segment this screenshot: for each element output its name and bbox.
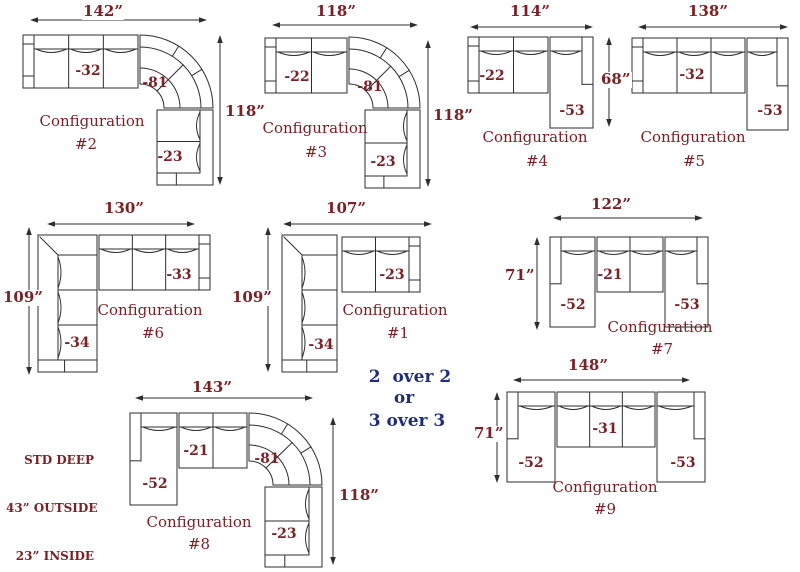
config7-caption: Configuration (607, 320, 712, 336)
config9-height-label: 71” (473, 426, 505, 442)
config7-height-label: 71” (504, 268, 536, 284)
config9-piece-label: -53 (670, 456, 695, 471)
config8-width-label: 143” (191, 380, 233, 396)
config5-caption: Configuration (640, 130, 745, 146)
config2-width-label: 142” (82, 4, 124, 20)
diagram-sheet: 142” 118” -32 -81 -23 Configuration #2 1… (0, 0, 800, 572)
config8-piece-label: -23 (271, 527, 296, 542)
config1-number: #1 (387, 326, 409, 342)
config6-piece-label: -34 (64, 336, 89, 351)
config8-piece-label: -52 (142, 477, 167, 492)
stack-option-note-line3: 3 over 3 (369, 413, 445, 431)
config1-height-label: 109” (231, 290, 273, 306)
config5-piece-label: -32 (679, 68, 704, 83)
config8-caption: Configuration (146, 515, 251, 531)
config3-piece-label: -23 (370, 155, 395, 170)
config3-caption: Configuration (262, 121, 367, 137)
config9-width-label: 148” (567, 358, 609, 374)
config3-width-label: 118” (315, 4, 357, 20)
config2-piece-label: -81 (142, 76, 167, 91)
config6-caption: Configuration (97, 303, 202, 319)
config3-height-label: 118” (432, 108, 474, 124)
config4-piece-label: -22 (479, 69, 504, 84)
config6-number: #6 (142, 326, 164, 342)
depth-info-block: STD DEEP 43” OUTSIDE 23” INSIDE --------… (6, 420, 94, 572)
config7-piece-label: -52 (560, 298, 585, 313)
config8-piece-label: -21 (183, 444, 208, 459)
config7-piece-label: -53 (674, 298, 699, 313)
config9-piece-label: -52 (518, 456, 543, 471)
config1-piece-label: -23 (379, 268, 404, 283)
sofa-diagram-canvas (0, 0, 800, 572)
config3-number: #3 (305, 145, 327, 161)
config9-number: #9 (594, 502, 616, 518)
config8-piece-label: -81 (254, 452, 279, 467)
config6-piece-label: -33 (166, 268, 191, 283)
config6-height-label: 109” (2, 290, 44, 306)
config2-caption: Configuration (39, 114, 144, 130)
config8-number: #8 (188, 537, 210, 553)
stack-option-note-line2: or (394, 390, 414, 408)
stack-option-note-line1: 2 over 2 (369, 369, 451, 387)
depth-info-line: 23” INSIDE (6, 548, 94, 564)
config9-piece-label: -31 (592, 422, 617, 437)
config9-caption: Configuration (552, 480, 657, 496)
config1-caption: Configuration (342, 303, 447, 319)
config7-number: #7 (651, 342, 673, 358)
config1-width-label: 107” (325, 201, 367, 217)
config4-width-label: 114” (509, 4, 551, 20)
config5-width-label: 138” (687, 4, 729, 20)
config2-piece-label: -23 (157, 150, 182, 165)
config4-piece-label: -53 (559, 104, 584, 119)
config8-height-label: 118” (338, 488, 380, 504)
config4-caption: Configuration (482, 130, 587, 146)
config5-piece-label: -53 (757, 104, 782, 119)
config3-piece-label: -22 (284, 70, 309, 85)
depth-info-line: STD DEEP (6, 452, 94, 468)
depth-info-line: 43” OUTSIDE (6, 500, 94, 516)
config2-number: #2 (75, 137, 97, 153)
config7-piece-label: -21 (597, 268, 622, 283)
config4-number: #4 (526, 154, 548, 170)
config3-piece-label: -81 (357, 80, 382, 95)
config6-width-label: 130” (103, 201, 145, 217)
config1-piece-label: -34 (308, 338, 333, 353)
config4-height-label: 68” (600, 72, 632, 88)
config2-height-label: 118” (224, 104, 266, 120)
config5-number: #5 (683, 154, 705, 170)
config2-piece-label: -32 (75, 64, 100, 79)
config7-width-label: 122” (590, 197, 632, 213)
